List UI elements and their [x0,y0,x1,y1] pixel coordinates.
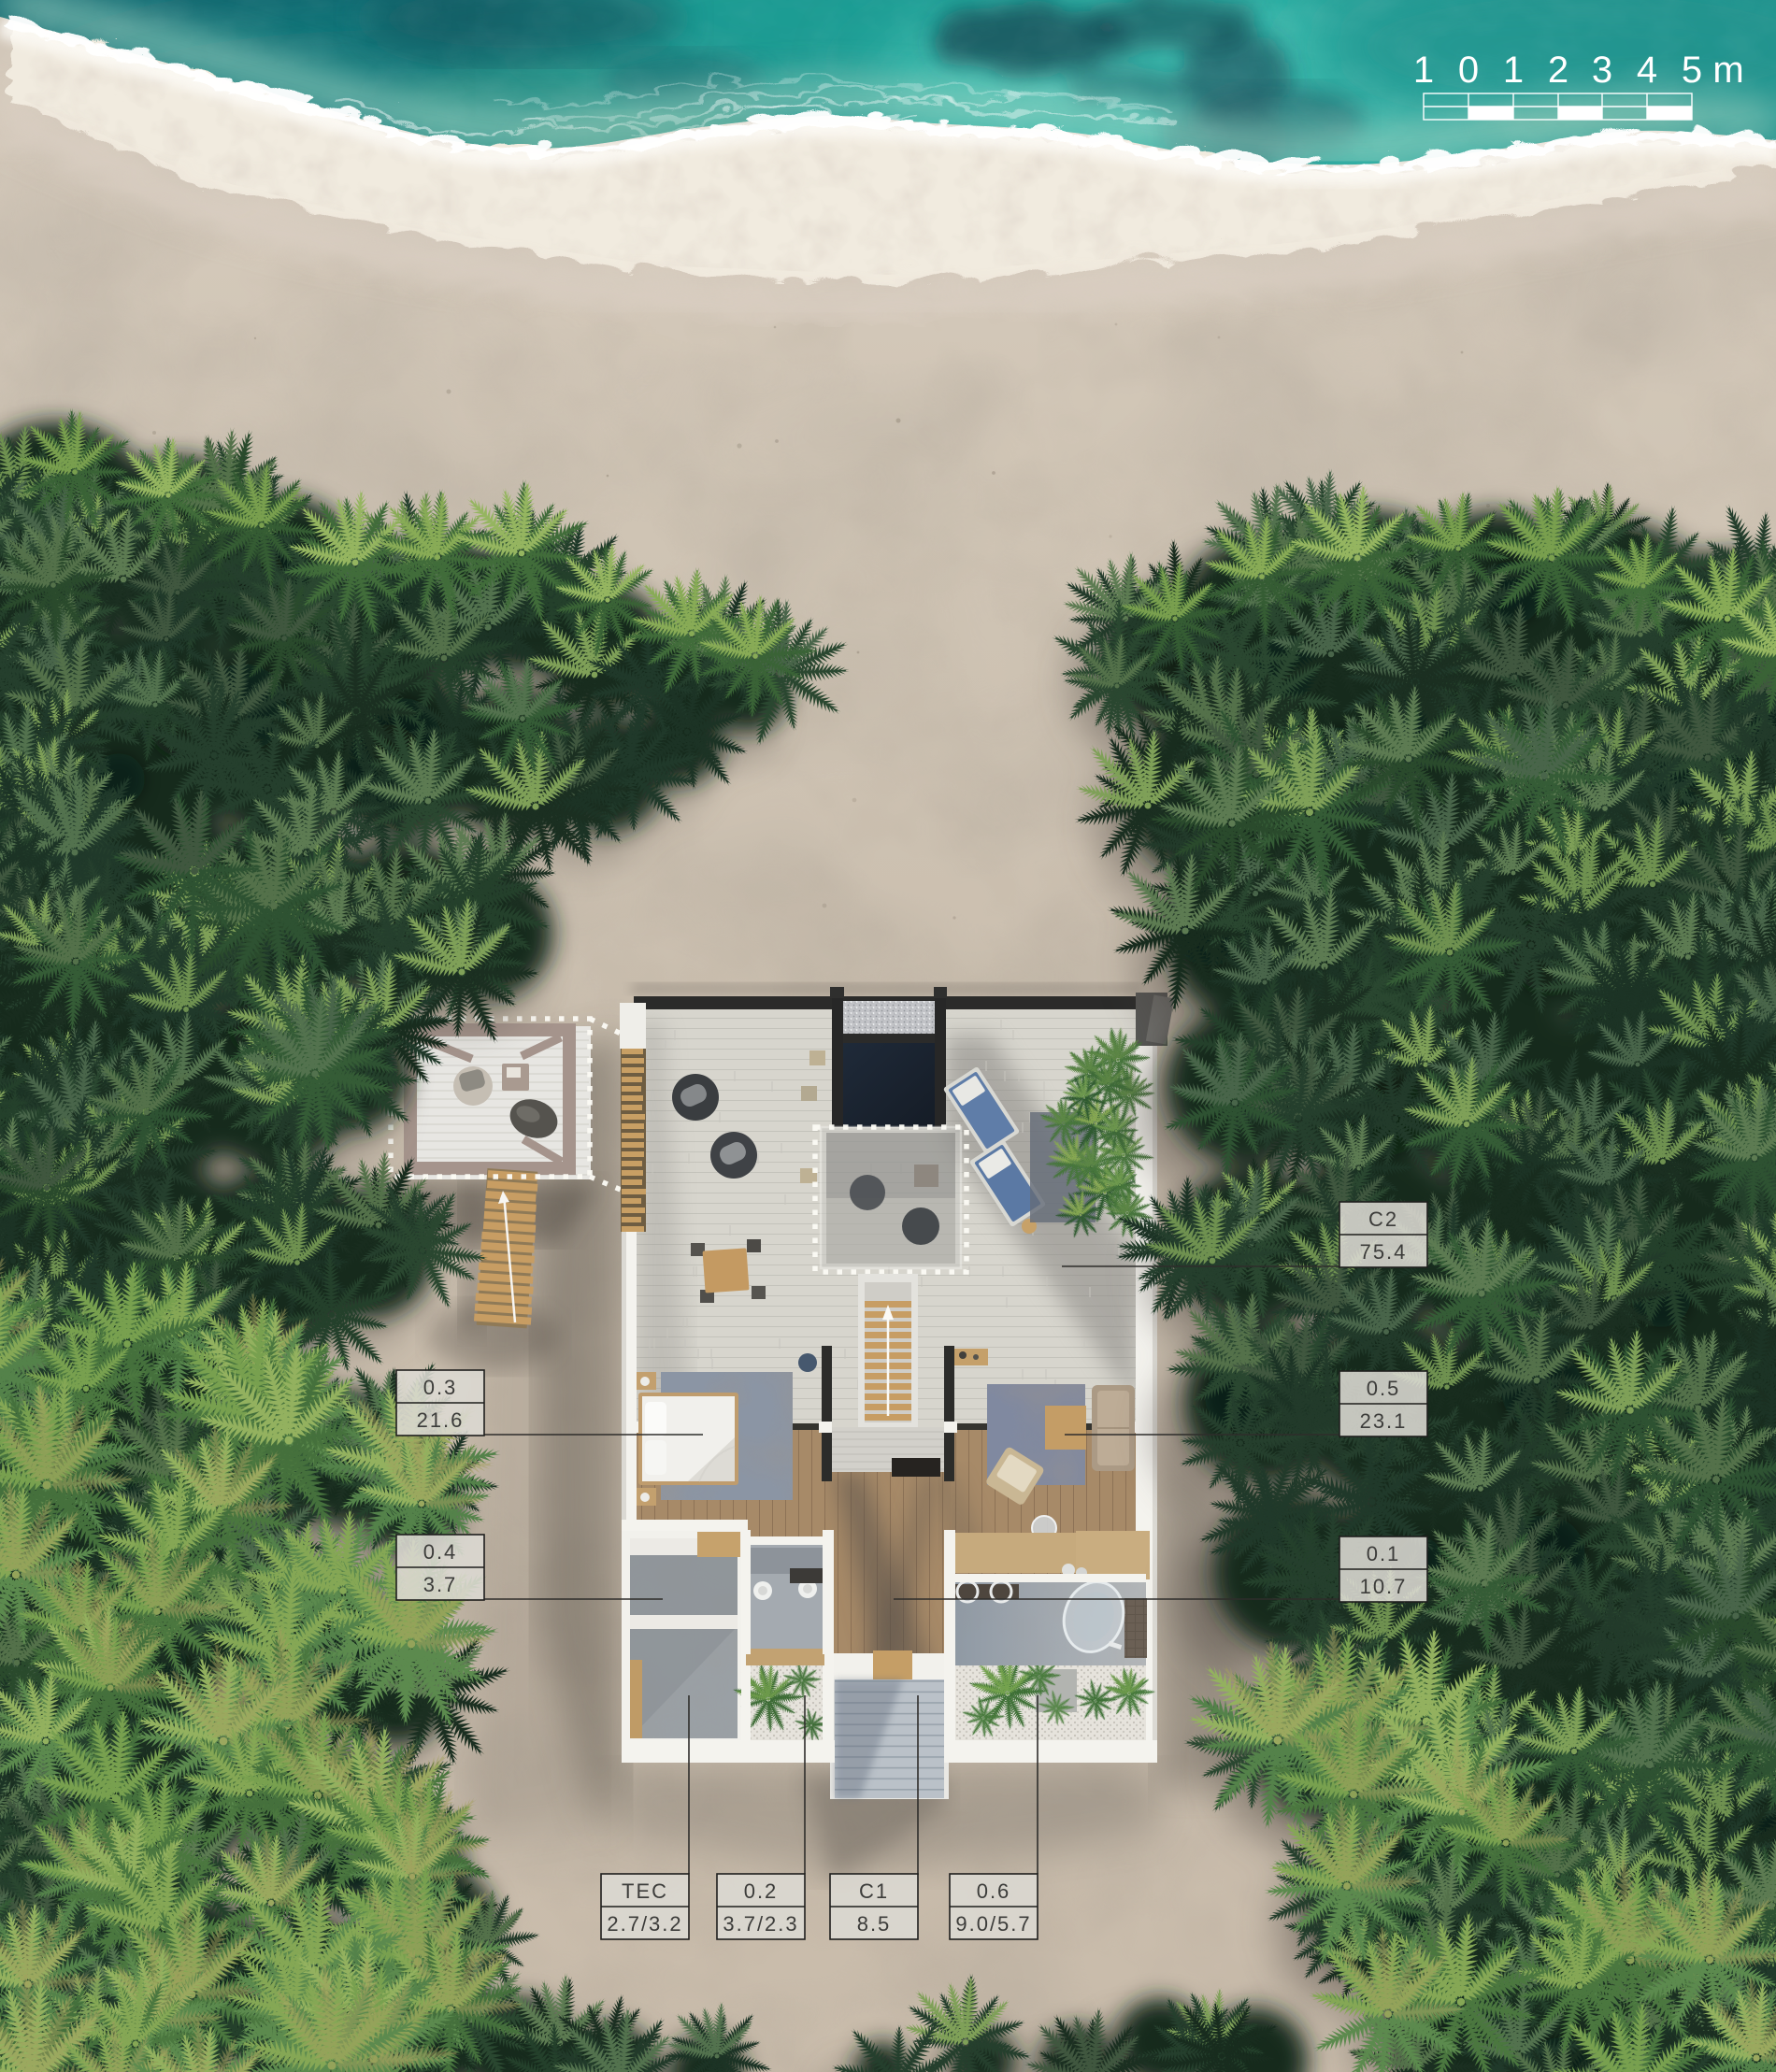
svg-text:9.0/5.7: 9.0/5.7 [955,1912,1031,1936]
svg-text:0.2: 0.2 [744,1879,779,1903]
svg-text:8.5: 8.5 [857,1912,892,1936]
svg-text:1: 1 [1413,50,1434,91]
svg-text:5: 5 [1682,50,1702,91]
svg-text:C1: C1 [859,1879,889,1903]
svg-text:C2: C2 [1368,1207,1398,1231]
svg-text:21.6: 21.6 [417,1408,465,1432]
svg-text:3.7: 3.7 [423,1573,458,1596]
svg-text:m: m [1712,50,1743,91]
svg-text:2.7/3.2: 2.7/3.2 [607,1912,682,1936]
svg-text:2: 2 [1548,50,1568,91]
svg-text:4: 4 [1637,50,1657,91]
svg-text:3.7/2.3: 3.7/2.3 [723,1912,798,1936]
svg-text:0.3: 0.3 [423,1376,458,1399]
svg-text:0.1: 0.1 [1367,1542,1401,1565]
svg-text:3: 3 [1592,50,1612,91]
svg-text:1: 1 [1503,50,1524,91]
svg-text:0.6: 0.6 [977,1879,1011,1903]
svg-text:75.4: 75.4 [1360,1240,1408,1264]
svg-text:TEC: TEC [622,1879,668,1903]
svg-text:0: 0 [1458,50,1479,91]
svg-text:0.5: 0.5 [1367,1377,1401,1400]
svg-text:23.1: 23.1 [1360,1409,1408,1433]
svg-text:0.4: 0.4 [423,1540,458,1564]
svg-text:10.7: 10.7 [1360,1575,1408,1598]
